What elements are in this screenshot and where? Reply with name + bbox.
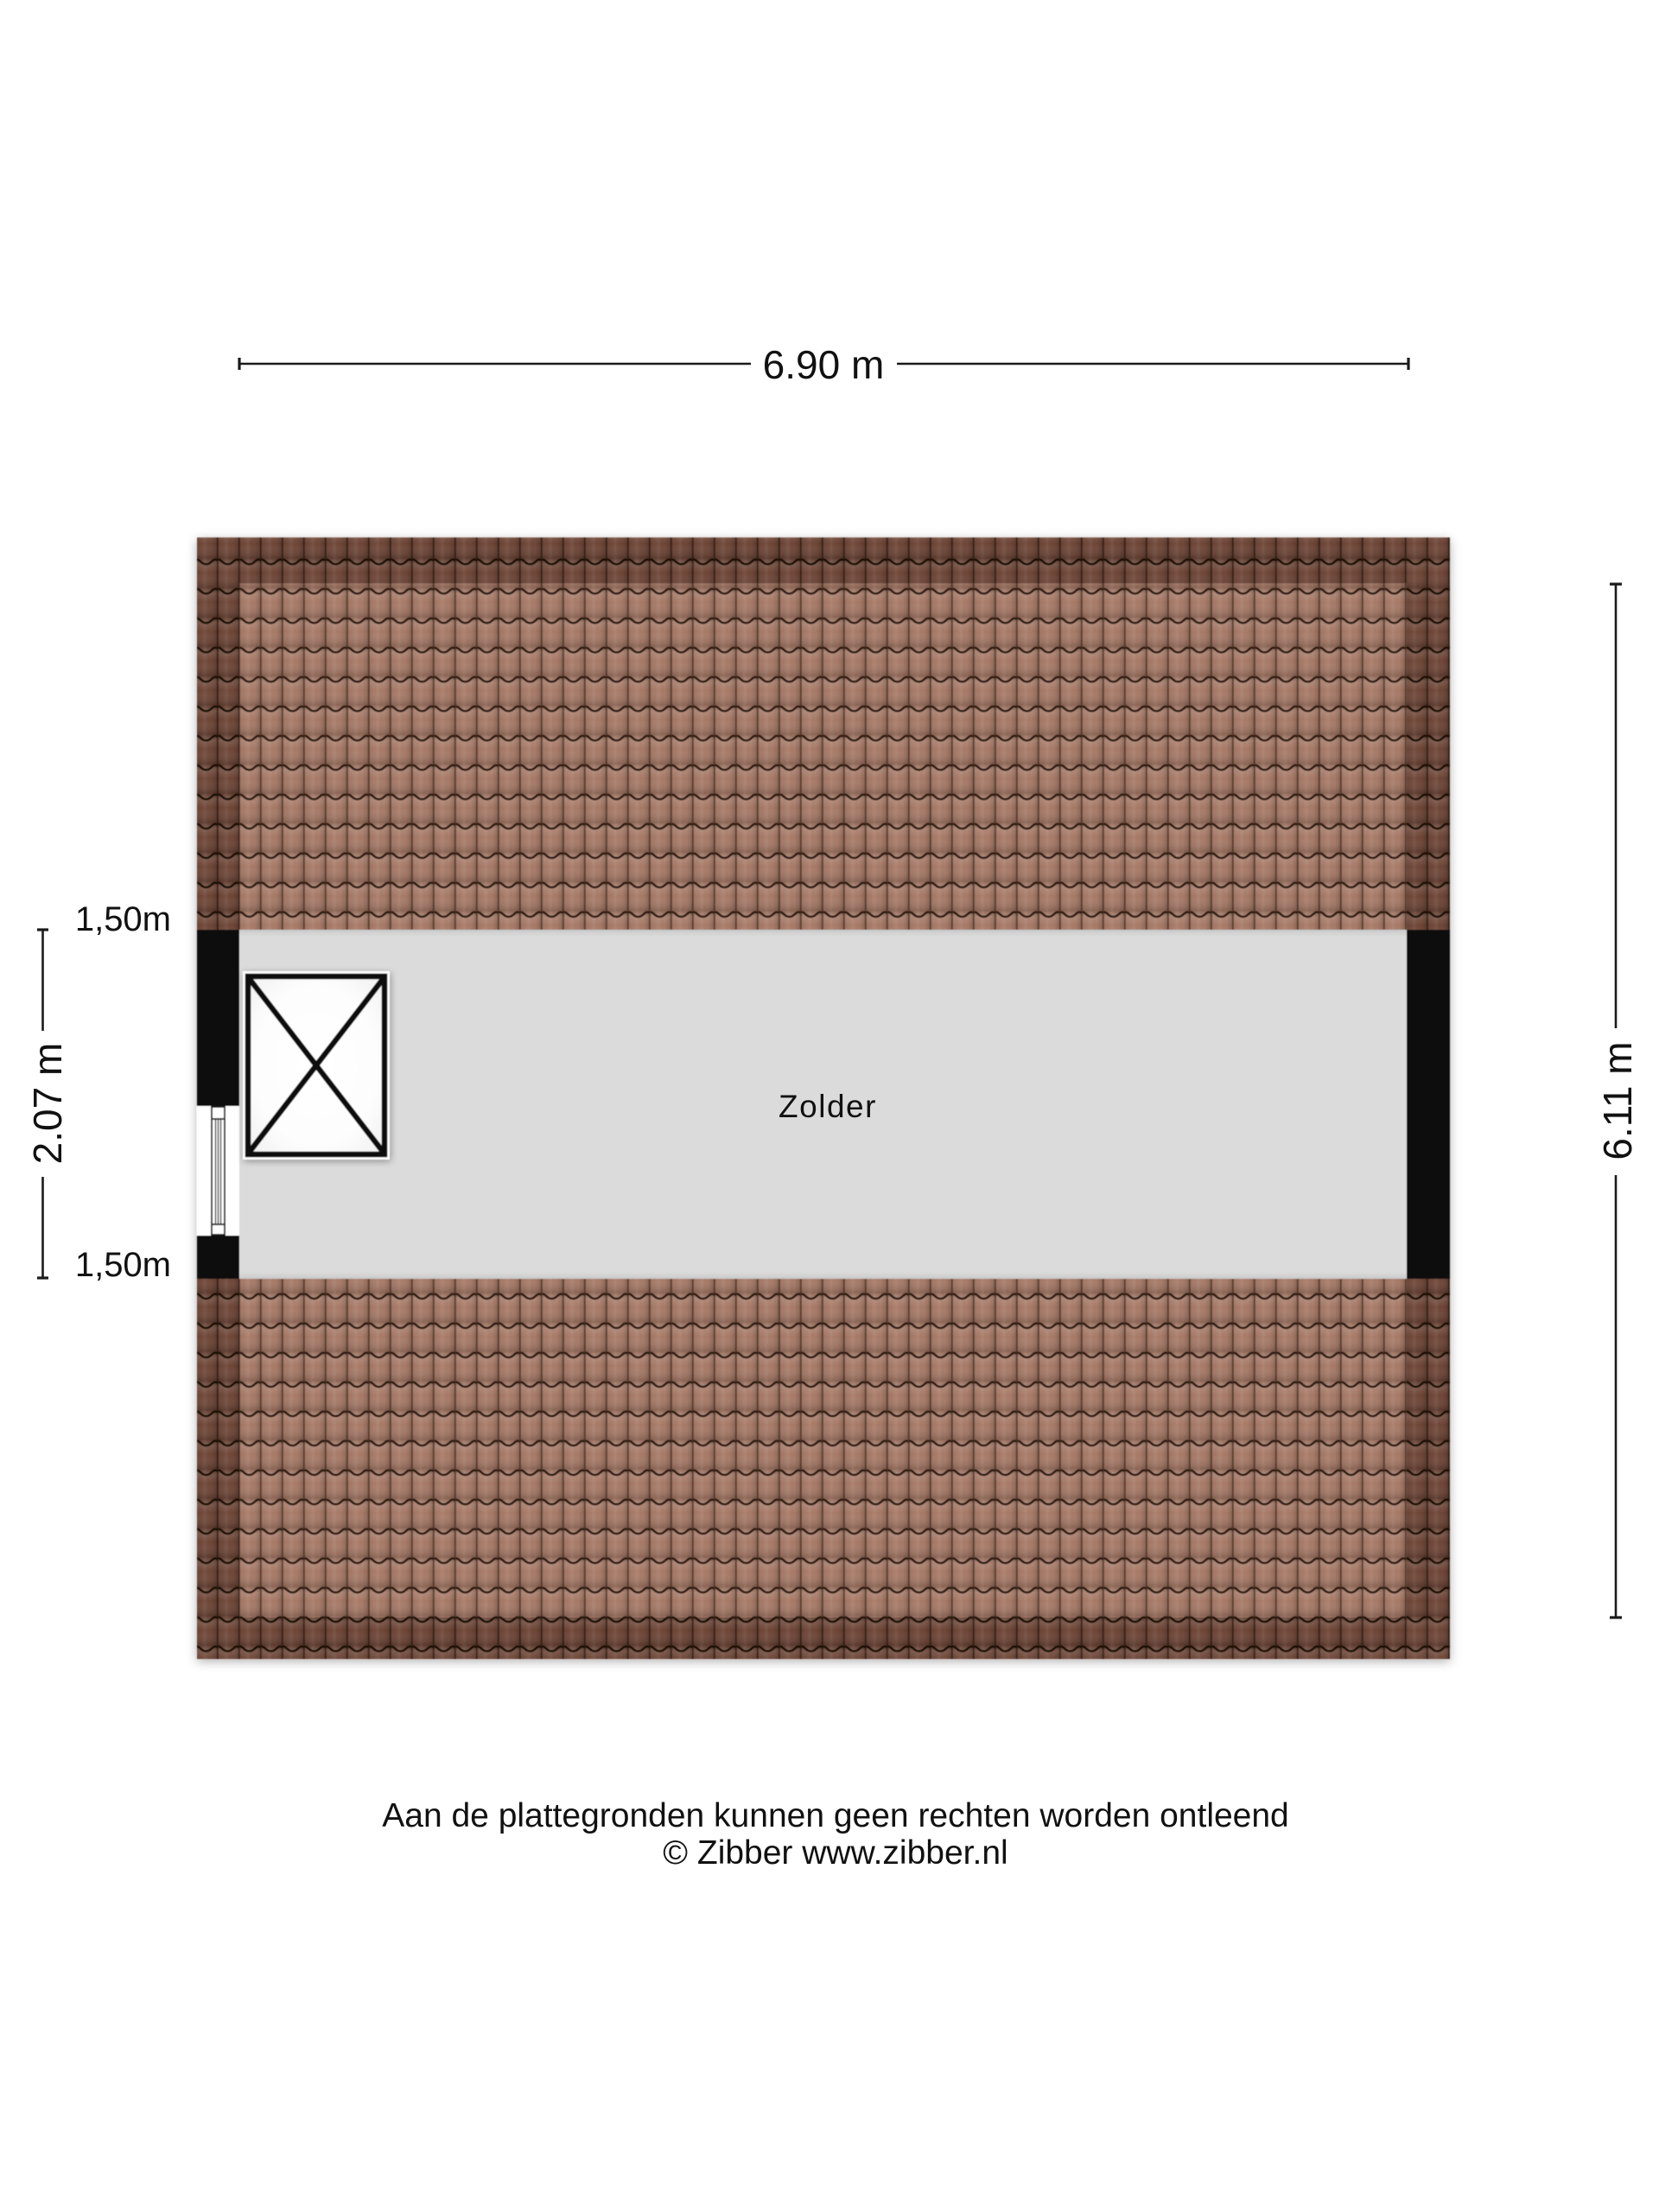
- svg-text:6.11 m: 6.11 m: [1595, 1041, 1640, 1160]
- svg-text:6.90 m: 6.90 m: [763, 342, 885, 387]
- svg-text:© Zibber www.zibber.nl: © Zibber www.zibber.nl: [663, 1834, 1007, 1872]
- svg-text:Zolder: Zolder: [779, 1089, 877, 1124]
- svg-text:1,50m: 1,50m: [75, 1246, 171, 1284]
- svg-text:Aan de plattegronden kunnen ge: Aan de plattegronden kunnen geen rechten…: [382, 1797, 1289, 1834]
- svg-text:2.07 m: 2.07 m: [25, 1043, 70, 1165]
- svg-text:1,50m: 1,50m: [75, 900, 171, 938]
